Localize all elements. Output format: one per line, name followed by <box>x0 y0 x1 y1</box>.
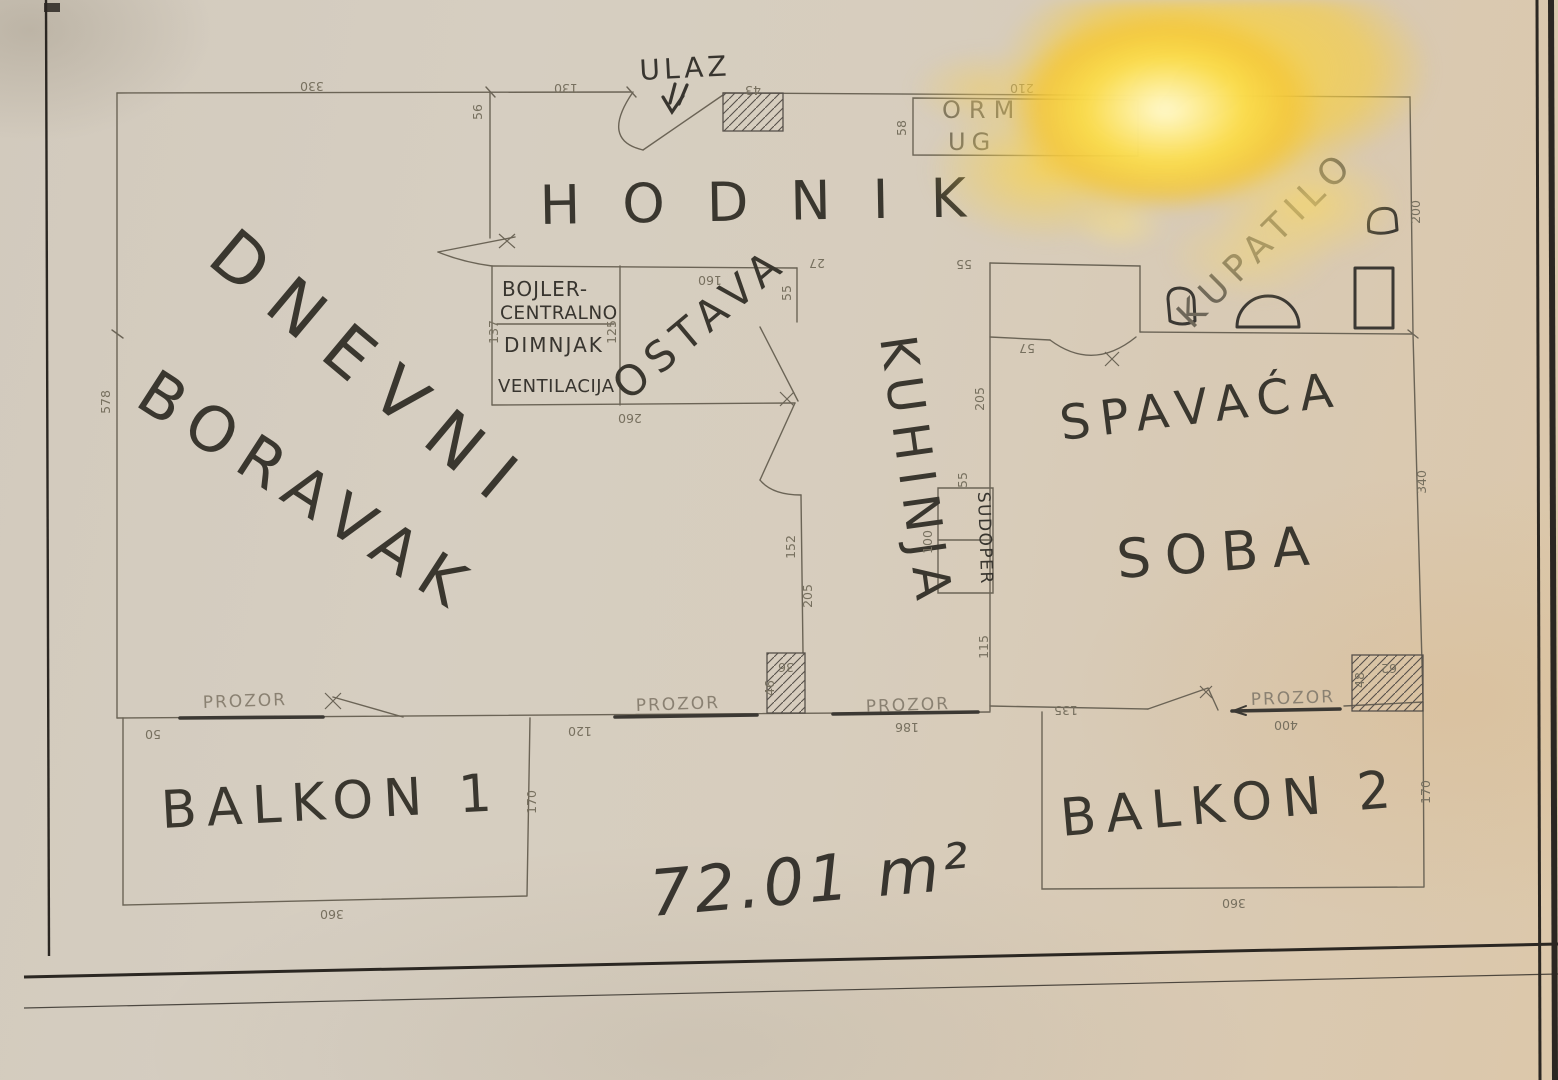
prozor-label-2: PROZOR <box>635 693 720 716</box>
label-hodnik: HODNIK <box>539 166 1008 237</box>
label-kupatilo: KUPATILO <box>1169 142 1363 336</box>
label-bojler-2: CENTRALNO <box>500 303 618 324</box>
label-bojler-1: BOJLER- <box>502 277 588 301</box>
entrance-arrow-icon <box>663 84 687 112</box>
dim-shaft1-side: 46 <box>762 680 777 696</box>
label-ostava: OSTAVA <box>603 237 796 410</box>
label-ulaz: ULAZ <box>639 49 732 87</box>
dim-kitchen-window: 186 <box>895 720 919 735</box>
dim-balcony2-bottom: 360 <box>1222 896 1246 911</box>
label-ormar-1: ORM <box>942 96 1022 124</box>
label-balkon2: BALKON 2 <box>1058 759 1403 848</box>
dim-balcony1-bottom: 360 <box>320 907 344 922</box>
dim-pantry-right: 55 <box>779 285 794 301</box>
dim-entry-door: 43 <box>745 83 761 98</box>
dim-top-living: 330 <box>300 79 324 94</box>
dim-balcony1-left: 50 <box>145 727 161 742</box>
label-ormar-2: UG <box>948 128 996 156</box>
dim-kitchen-west-lower: 205 <box>800 584 815 608</box>
floor-plan-drawing: ULAZ HODNIK DNEVNI BORAVAK OSTAVA KUHINJ… <box>0 0 1558 1080</box>
dim-shaft2-top: 62 <box>1381 661 1397 676</box>
dim-kitchen-wall-lower: 115 <box>976 635 991 659</box>
dim-boiler-right: 125 <box>604 320 619 344</box>
label-bojler-3: DIMNJAK <box>504 333 604 357</box>
dim-bath-right: 200 <box>1408 200 1423 224</box>
dim-bedroom-seg: 135 <box>1054 703 1078 718</box>
dim-boiler-left: 137 <box>486 320 501 344</box>
dim-pantry-bottom: 260 <box>618 411 642 426</box>
room-labels: ULAZ HODNIK DNEVNI BORAVAK OSTAVA KUHINJ… <box>125 49 1403 932</box>
dim-balcony2-right: 170 <box>1418 780 1433 804</box>
dim-hall-seg: 55 <box>956 257 972 272</box>
dim-sink-side: 100 <box>920 530 935 554</box>
dim-shaft1-top: 36 <box>778 660 794 675</box>
prozor-label-3: PROZOR <box>865 694 950 717</box>
dim-living-window-seg: 120 <box>568 724 592 739</box>
label-bojler-4: VENTILACIJA <box>498 376 615 397</box>
dim-wardrobe-width: 210 <box>1010 81 1034 96</box>
dim-shaft2-side: 48 <box>1352 672 1367 688</box>
prozor-label-1: PROZOR <box>202 690 287 713</box>
label-soba: SOBA <box>1115 514 1326 591</box>
floor-plan-photo: ULAZ HODNIK DNEVNI BORAVAK OSTAVA KUHINJ… <box>0 0 1558 1080</box>
dim-left-wall: 578 <box>98 390 113 414</box>
label-kuhinja: KUHINJA <box>868 332 964 613</box>
dim-kitchen-wall-upper: 205 <box>972 387 987 411</box>
dim-wardrobe-depth: 58 <box>894 120 909 136</box>
dim-pantry-top: 160 <box>698 273 722 288</box>
washbasin-icon <box>1237 296 1299 327</box>
label-area: 72.01 m² <box>647 830 976 932</box>
label-sudoper: SUDOPER <box>973 491 996 585</box>
label-spavaca: SPAVAĆA <box>1057 361 1346 452</box>
dim-balcony1-right: 170 <box>524 790 539 814</box>
dim-entry-wall: 56 <box>470 104 485 120</box>
dim-corner: 27 <box>809 256 825 271</box>
dim-kitchen-west-upper: 152 <box>783 535 798 559</box>
dim-bedroom-door: 57 <box>1019 341 1035 356</box>
dim-sink-top: 55 <box>955 472 970 488</box>
label-balkon1: BALKON 1 <box>160 763 504 841</box>
shower-icon <box>1355 268 1393 328</box>
dim-top-hall: 130 <box>554 81 578 96</box>
prozor-label-4: PROZOR <box>1250 687 1335 710</box>
toilet-icon <box>1368 208 1397 233</box>
dim-bedroom-window: 400 <box>1274 718 1298 733</box>
dim-bedroom-right: 340 <box>1414 470 1429 494</box>
